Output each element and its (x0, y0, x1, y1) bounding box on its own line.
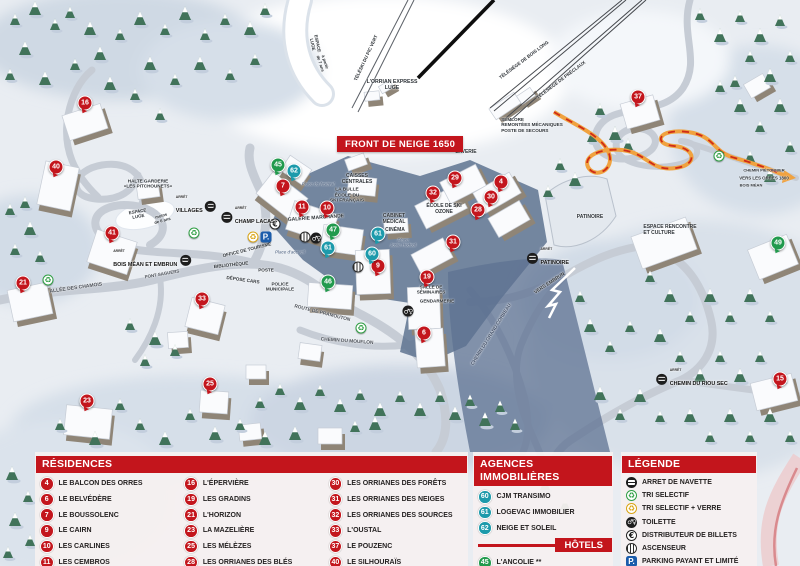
map-label: CABINET MÉDICAL (383, 214, 406, 226)
map-label: CHEMIN DU GRAND CORBEAU (471, 303, 514, 367)
legend-row-label: LES MÉLÈZES (203, 543, 252, 550)
resort-map-page: FRONT DE NEIGE 1650 16404121232533711109… (0, 0, 800, 566)
map-marker-47: 47 (326, 223, 341, 238)
map-label: HALTE GARDERIE «LES PITCHOUNETS» (124, 179, 172, 190)
map-label: ESPACE LUGE (128, 207, 147, 220)
legend-row: 31LES ORRIANES DES NEIGES (324, 492, 468, 508)
elevator-icon (353, 262, 364, 273)
legend-row-label: L'ANCOLIE ** (497, 559, 542, 566)
legend-row: 6LE BELVÉDÈRE (35, 492, 179, 508)
legend-row: 32LES ORRIANES DES SOURCES (324, 507, 468, 523)
map-marker-45: 45 (271, 158, 286, 173)
map-marker-21: 21 (16, 276, 31, 291)
hotels-divider: HÔTELS (473, 538, 613, 552)
map-label: CHEMIN DU MOUFLON (320, 337, 373, 346)
legend-row: 11LES CEMBROS (35, 554, 179, 566)
number-pin: 61 (478, 506, 492, 520)
recycle-yellow-icon: ♻ (248, 232, 259, 243)
map-label: moins de 6 ans (153, 212, 172, 226)
bus-stop-bois-m-an-et-embrun: ARRÊTBOIS MÉAN ET EMBRUN (113, 250, 191, 270)
hotels-header: HÔTELS (555, 538, 612, 552)
number-pin: 33 (329, 524, 343, 538)
bus-stop-villages: ARRÊTVILLAGES (176, 196, 216, 216)
legend-list: ARRET DE NAVETTE♻TRI SELECTIF♻TRI SELECT… (621, 473, 757, 566)
map-marker-6: 6 (417, 326, 432, 341)
residences-header: RÉSIDENCES (36, 456, 467, 473)
legend-row: 61LOGEVAC IMMOBILIER (473, 505, 613, 521)
residences-column: 4LE BALCON DES ORRES6LE BELVÉDÈRE7LE BOU… (35, 476, 179, 566)
toilet-icon: ♂♀ (626, 517, 637, 528)
map-label: POSTE (258, 267, 274, 272)
agencies-hotels-panel: AGENCES IMMOBILIÈRES 60CJM TRANSIMO61LOG… (473, 452, 613, 566)
number-pin: 9 (40, 524, 54, 538)
legend-row: 45L'ANCOLIE ** (473, 555, 613, 566)
map-marker-37: 37 (631, 90, 646, 105)
number-pin: 62 (478, 521, 492, 535)
legend-row: ASCENSEUR (621, 542, 757, 555)
euro-icon: € (626, 530, 637, 541)
map-marker-23: 23 (80, 394, 95, 409)
legend-row-label: ASCENSEUR (642, 545, 686, 552)
hotels-list: 45L'ANCOLIE **46LES ECRINS **47L'ESCALE … (473, 552, 613, 566)
map-label: ESPACE LUGE (308, 34, 322, 54)
map-label: BOIS MÉAN (740, 184, 763, 189)
map-marker-28: 28 (471, 203, 486, 218)
bus-stop-text: ARRÊTBOIS MÉAN ET EMBRUN (113, 250, 177, 270)
stop-name: PATINOIRE (540, 259, 569, 265)
map-label: VERS LES ORRES 1800 (739, 175, 789, 180)
bus-stop-icon (656, 373, 667, 384)
legend-row: ♂♀TOILETTE (621, 516, 757, 529)
map-label: Place d'accueil (275, 249, 305, 254)
map-label: à partir de 7 ans (315, 53, 330, 72)
residences-column: 30LES ORRIANES DES FORÊTS31LES ORRIANES … (324, 476, 468, 566)
map-label: LA BULLE ÉCOLE DU SKI FRANÇAIS (330, 188, 364, 205)
map-label: L'ORRIAN EXPRESS LUGE (367, 79, 418, 91)
legend-row-label: LES GRADINS (203, 496, 251, 503)
bus-stop-icon (527, 252, 538, 263)
legend-row-label: L'OUSTAL (347, 527, 381, 534)
map-marker-11: 11 (295, 200, 310, 215)
map-label: Place du festival (302, 181, 335, 186)
hotels-divider-line (478, 544, 557, 547)
legend-row-label: LE SILHOURAÏS (347, 559, 401, 566)
number-pin: 31 (329, 493, 343, 507)
legend-row-label: DISTRIBUTEUR DE BILLETS (642, 532, 737, 539)
bus-stop-icon (180, 254, 191, 265)
residences-column: 16L'ÉPERVIÈRE19LES GRADINS21L'HORIZON23L… (179, 476, 323, 566)
arret-label: ARRÊT (113, 250, 177, 254)
map-label: GENDARMERIE (420, 298, 454, 303)
legend-row-label: LES ORRIANES DES SOURCES (347, 512, 452, 519)
legend-row: 30LES ORRIANES DES FORÊTS (324, 476, 468, 492)
number-pin: 40 (329, 556, 343, 566)
number-pin: 23 (184, 524, 198, 538)
arret-label: ARRÊT (176, 196, 203, 200)
agencies-header: AGENCES IMMOBILIÈRES (474, 456, 612, 486)
map-marker-25: 25 (203, 377, 218, 392)
bus-stop-icon (205, 200, 216, 211)
legend-row-label: LES ORRIANES DES FORÊTS (347, 480, 446, 487)
legend-row: 9LE CAIRN (35, 523, 179, 539)
front-de-neige-banner: FRONT DE NEIGE 1650 (337, 136, 463, 152)
map-marker-29: 29 (448, 171, 463, 186)
recycle-green-icon: ♻ (714, 151, 725, 162)
map-label: VERS EMBRUN (534, 272, 567, 296)
recycle-y-icon: ♻ (626, 503, 637, 514)
arret-label: ARRÊT (235, 207, 275, 211)
legend-row-label: ARRET DE NAVETTE (642, 479, 712, 486)
legend-row: €DISTRIBUTEUR DE BILLETS (621, 529, 757, 542)
map-marker-7: 7 (276, 179, 291, 194)
legend-panel: LÉGENDE ARRET DE NAVETTE♻TRI SELECTIF♻TR… (621, 452, 757, 566)
number-pin: 28 (184, 556, 198, 566)
recycle-green-icon: ♻ (356, 323, 367, 334)
map-marker-62: 62 (287, 164, 302, 179)
map-label: DÉPOSE CARS (226, 275, 260, 285)
bus-stop-icon (221, 211, 232, 222)
map-label: ESPACE RENCONTRE ET CULTURE (643, 225, 696, 237)
bus-stop-chemin-du-riou-sec: ARRÊTCHEMIN DU RIOU SEC (656, 369, 728, 389)
legend-row-label: LE BALCON DES ORRES (59, 480, 143, 487)
legend-row-label: PARKING PAYANT ET LIMITÉ (642, 558, 738, 565)
legend-row: 40LE SILHOURAÏS (324, 554, 468, 566)
map-marker-16: 16 (78, 96, 93, 111)
legend-row: 16L'ÉPERVIÈRE (179, 476, 323, 492)
legend-row-label: TRI SELECTIF + VERRE (642, 505, 721, 512)
map-marker-32: 32 (426, 186, 441, 201)
number-pin: 45 (478, 556, 492, 566)
map-label: TÉLÉSIÈGE DE PRÉCLAUX (535, 60, 586, 100)
map-marker-15: 15 (773, 372, 788, 387)
number-pin: 4 (40, 477, 54, 491)
bus-stop-text: ARRÊTVILLAGES (176, 196, 203, 216)
bus-stop-text: ARRÊTCHAMP LACAS (235, 207, 275, 227)
number-pin: 60 (478, 490, 492, 504)
stop-name: CHEMIN DU RIOU SEC (670, 380, 728, 386)
recycle-green-icon: ♻ (43, 275, 54, 286)
legend-row-label: TRI SELECTIF (642, 492, 689, 499)
legend-row-label: LE BOUSSOLENC (59, 512, 119, 519)
map-label: Place Josie Hodoul (390, 238, 416, 249)
legend-row: 25LES MÉLÈZES (179, 539, 323, 555)
legend-row: 60CJM TRANSIMO (473, 489, 613, 505)
legend-row-label: TOILETTE (642, 519, 676, 526)
legend-row: P.PARKING PAYANT ET LIMITÉ (621, 555, 757, 566)
map-marker-33: 33 (195, 292, 210, 307)
legend-row-label: LES ORRIANES DES NEIGES (347, 496, 444, 503)
number-pin: 10 (40, 540, 54, 554)
legend-row-label: LE BELVÉDÈRE (59, 496, 112, 503)
number-pin: 25 (184, 540, 198, 554)
arret-label: ARRÊT (540, 248, 569, 252)
legend-row-label: LES ORRIANES DES BLÉS (203, 559, 292, 566)
legend-row-label: LOGEVAC IMMOBILIER (497, 509, 575, 516)
legend-header: LÉGENDE (622, 456, 756, 473)
arret-label: ARRÊT (670, 369, 728, 373)
map-marker-4: 4 (494, 175, 509, 190)
legend-row: 23LA MAZELIÈRE (179, 523, 323, 539)
map-label: CAISSES CENTRALES (342, 174, 373, 186)
number-pin: 37 (329, 540, 343, 554)
stop-name: CHAMP LACAS (235, 218, 275, 224)
number-pin: 16 (184, 477, 198, 491)
parking-icon: P. (261, 232, 272, 243)
map-label: TÉLÉSKI DU PIC VERT (353, 34, 379, 81)
map-label: POLICE MUNICIPALE (266, 282, 294, 293)
legend-row-label: L'ÉPERVIÈRE (203, 480, 249, 487)
legend-row: 4LE BALCON DES ORRES (35, 476, 179, 492)
map-marker-10: 10 (320, 201, 335, 216)
recycle-green-icon: ♻ (189, 228, 200, 239)
map-label: ÉCOLE DE SKI OZONE (426, 204, 461, 216)
map-label: SEMLORE REMONTÉES MÉCANIQUES POSTE DE SE… (501, 117, 563, 133)
number-pin: 30 (329, 477, 343, 491)
bottom-panel: RÉSIDENCES 4LE BALCON DES ORRES6LE BELVÉ… (0, 452, 800, 566)
legend-row-label: LES CEMBROS (59, 559, 110, 566)
map-label: PATINOIRE (577, 215, 603, 221)
residences-panel: RÉSIDENCES 4LE BALCON DES ORRES6LE BELVÉ… (35, 452, 468, 566)
map-marker-61: 61 (321, 241, 336, 256)
legend-row: ARRET DE NAVETTE (621, 476, 757, 489)
legend-row: 37LE POUZENC (324, 539, 468, 555)
legend-row-label: LE CAIRN (59, 527, 92, 534)
map-label: ROUTE DE PRAMOUTON (293, 304, 350, 323)
stop-name: VILLAGES (176, 207, 203, 213)
elevator-icon (300, 232, 311, 243)
number-pin: 19 (184, 493, 198, 507)
legend-row: ♻TRI SELECTIF (621, 489, 757, 502)
bus-stop-patinoire: ARRÊTPATINOIRE (527, 248, 569, 268)
toilet-icon: ♂♀ (311, 233, 322, 244)
legend-row-label: LA MAZELIÈRE (203, 527, 254, 534)
recycle-g-icon: ♻ (626, 490, 637, 501)
toilet-icon: ♂♀ (403, 306, 414, 317)
legend-row-label: LE POUZENC (347, 543, 392, 550)
stop-name: BOIS MÉAN ET EMBRUN (113, 261, 177, 267)
legend-row: 33L'OUSTAL (324, 523, 468, 539)
legend-row-label: CJM TRANSIMO (497, 493, 551, 500)
map-marker-60: 60 (365, 247, 380, 262)
bus-stop-text: ARRÊTCHEMIN DU RIOU SEC (670, 369, 728, 389)
agencies-list: 60CJM TRANSIMO61LOGEVAC IMMOBILIER62NEIG… (473, 486, 613, 536)
bus-icon (626, 477, 637, 488)
residences-list: 4LE BALCON DES ORRES6LE BELVÉDÈRE7LE BOU… (35, 473, 468, 566)
map-label: BIBLIOTHÈQUE (213, 260, 248, 269)
legend-row-label: LES CARLINES (59, 543, 110, 550)
bus-stop-text: ARRÊTPATINOIRE (540, 248, 569, 268)
map-marker-31: 31 (446, 235, 461, 250)
number-pin: 32 (329, 508, 343, 522)
map-label: TÉLÉSIÈGE DE BOIS LONG (498, 40, 550, 81)
legend-row: 28LES ORRIANES DES BLÉS (179, 554, 323, 566)
number-pin: 11 (40, 556, 54, 566)
parking-icon: P. (626, 556, 637, 566)
number-pin: 21 (184, 508, 198, 522)
map-marker-19: 19 (420, 270, 435, 285)
map-label: ALLÉE DES CHAMOIS (49, 282, 102, 295)
number-pin: 7 (40, 508, 54, 522)
map-marker-61: 61 (371, 227, 386, 242)
map-label: CHEMIN PIÉTONNIER (743, 169, 784, 174)
legend-row: 10LES CARLINES (35, 539, 179, 555)
legend-row-label: L'HORIZON (203, 512, 241, 519)
map-label: OFFICE DE TOURISME (222, 241, 272, 258)
map-marker-41: 41 (105, 226, 120, 241)
legend-row-label: NEIGE ET SOLEIL (497, 525, 557, 532)
legend-row: ♻TRI SELECTIF + VERRE (621, 502, 757, 515)
map-marker-40: 40 (49, 160, 64, 175)
map-marker-30: 30 (484, 190, 499, 205)
legend-row: 7LE BOUSSOLENC (35, 507, 179, 523)
map-marker-46: 46 (321, 275, 336, 290)
map-marker-49: 49 (771, 236, 786, 251)
legend-row: 62NEIGE ET SOLEIL (473, 520, 613, 536)
elevator-icon (626, 543, 637, 554)
map-label: SALLE DE SÉMINAIRES (417, 285, 446, 296)
map-label: CINÉMA (385, 228, 405, 234)
legend-row: 21L'HORIZON (179, 507, 323, 523)
number-pin: 6 (40, 493, 54, 507)
bus-stop-champ-lacas: ARRÊTCHAMP LACAS (221, 207, 274, 227)
legend-row: 19LES GRADINS (179, 492, 323, 508)
